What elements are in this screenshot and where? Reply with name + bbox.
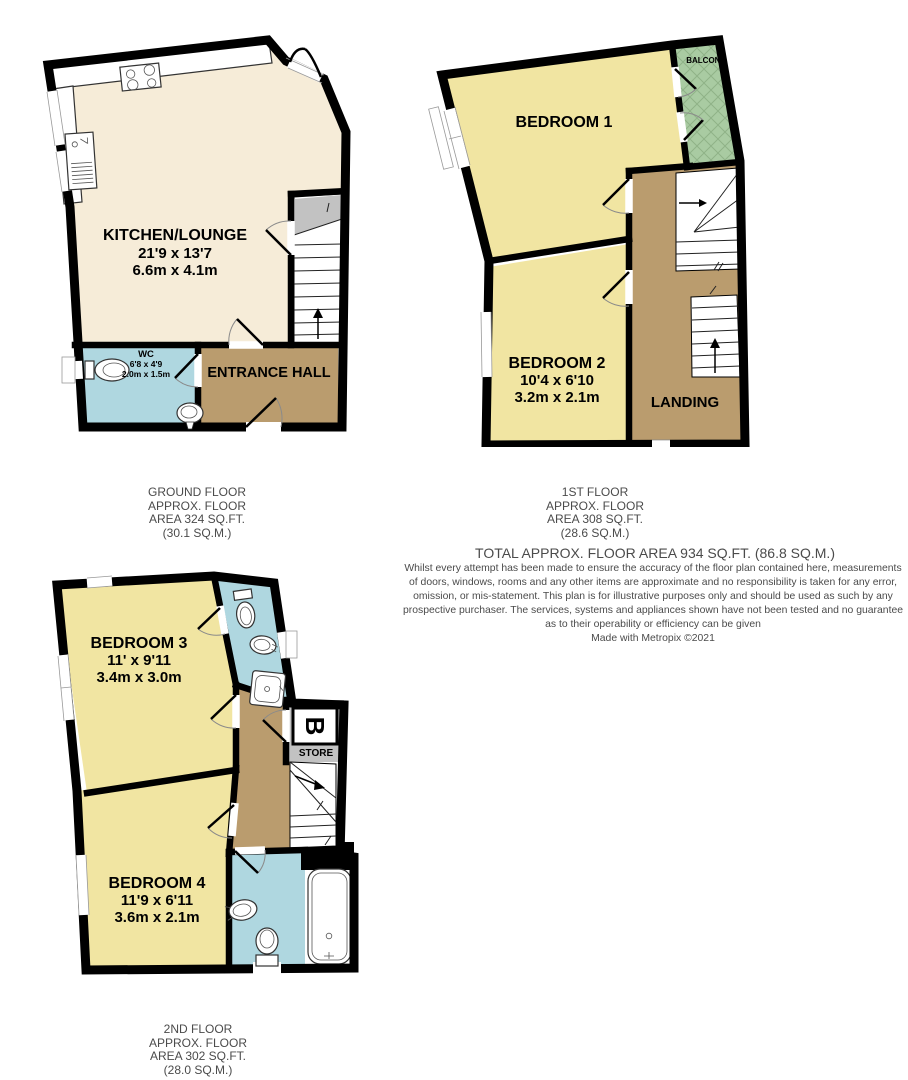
bedroom4-room [77,768,236,970]
bedroom4-dim-m: 3.6m x 2.1m [114,909,199,926]
shower-tray-icon [249,670,285,707]
caption-line: AREA 302 SQ.FT. [98,1050,298,1064]
kitchen-label: KITCHEN/LOUNGE [103,227,247,244]
bathtub-icon [308,869,351,964]
bedroom2-room [486,244,629,445]
caption-line: (30.1 SQ.M.) [97,527,297,541]
entrance-hall-room [201,348,338,427]
window-icon [87,576,112,588]
wc-dim-m: 2.0m x 1.5m [122,369,171,379]
disclaimer-line: prospective purchaser. The services, sys… [393,604,908,618]
caption-line: AREA 308 SQ.FT. [495,513,695,527]
kitchen-dim-m: 6.6m x 4.1m [132,262,217,279]
disclaimer-line: omission, or mis-statement. This plan is… [393,590,908,604]
disclaimer-line: as to their operability or efficiency ca… [393,618,908,632]
store-area: B STORE [286,700,344,762]
balcony-label: BALCONY [686,56,726,65]
staircase-icon [691,286,740,377]
disclaimer-text: Whilst every attempt has been made to en… [393,562,908,646]
bedroom4-dim-ft: 11'9 x 6'11 [121,892,193,909]
caption-line: (28.6 SQ.M.) [495,527,695,541]
kitchen-dim-ft: 21'9 x 13'7 [138,245,212,262]
bedroom2-label: BEDROOM 2 [509,355,606,372]
credit-line: Made with Metropix ©2021 [393,632,908,646]
staircase-icon [290,762,336,848]
caption-line: 2ND FLOOR [98,1023,298,1037]
bedroom4-label: BEDROOM 4 [109,875,206,892]
landing-label: LANDING [651,394,719,411]
kitchen-sink-icon [65,132,97,190]
wc-dim-ft: 6'8 x 4'9 [130,359,163,369]
caption-line: APPROX. FLOOR [495,500,695,514]
bedroom1-label: BEDROOM 1 [516,114,613,131]
caption-line: APPROX. FLOOR [97,500,297,514]
second-floor-plan: B STORE [27,570,362,1000]
bedroom3-dim-m: 3.4m x 3.0m [96,669,181,686]
first-floor-plan: BEDROOM 1 BEDROOM 2 10'4 x 6'10 3.2m x 2… [424,27,759,447]
store-label: STORE [299,748,334,759]
caption-line: AREA 324 SQ.FT. [97,513,297,527]
ground-floor-caption: GROUND FLOOR APPROX. FLOOR AREA 324 SQ.F… [97,486,297,540]
ground-floor-plan: KITCHEN/LOUNGE 21'9 x 13'7 6.6m x 4.1m W… [33,27,363,447]
bedroom3-label: BEDROOM 3 [91,635,188,652]
hob-icon [120,63,161,91]
window-icon [481,312,492,377]
first-floor-caption: 1ST FLOOR APPROX. FLOOR AREA 308 SQ.FT. … [495,486,695,540]
caption-line: GROUND FLOOR [97,486,297,500]
staircase-up-icon [676,168,741,271]
caption-line: APPROX. FLOOR [98,1037,298,1051]
total-area-line: TOTAL APPROX. FLOOR AREA 934 SQ.FT. (86.… [375,545,908,561]
window-icon [282,631,297,658]
disclaimer-line: Whilst every attempt has been made to en… [393,562,908,576]
bedroom3-dim-ft: 11' x 9'11 [107,652,171,669]
disclaimer-line: of doors, windows, rooms and any other i… [393,576,908,590]
hall-label: ENTRANCE HALL [207,365,330,381]
caption-line: 1ST FLOOR [495,486,695,500]
second-floor-caption: 2ND FLOOR APPROX. FLOOR AREA 302 SQ.FT. … [98,1023,298,1077]
caption-line: (28.0 SQ.M.) [98,1064,298,1078]
floorplan-page: KITCHEN/LOUNGE 21'9 x 13'7 6.6m x 4.1m W… [0,0,908,1080]
bedroom2-dim-ft: 10'4 x 6'10 [520,372,594,389]
bedroom2-dim-m: 3.2m x 2.1m [514,389,599,406]
staircase-icon [294,194,342,343]
boiler-label: B [300,717,330,736]
